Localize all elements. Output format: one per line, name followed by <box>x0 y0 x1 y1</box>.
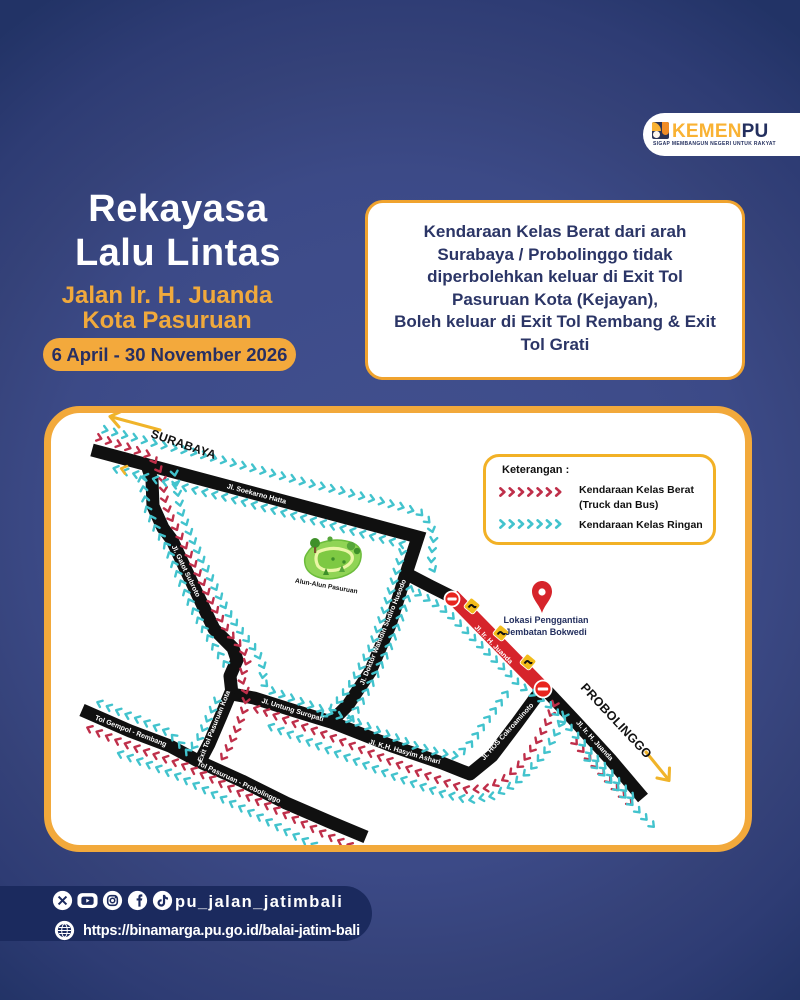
svg-text:Jl. Doktor Wahidin Sudiro Huso: Jl. Doktor Wahidin Sudiro Husodo <box>359 579 408 687</box>
svg-text:Jembatan Bokwedi: Jembatan Bokwedi <box>505 627 587 637</box>
svg-text:Jl. HOS Cokroaminoto: Jl. HOS Cokroaminoto <box>480 702 535 762</box>
svg-text:Tol Pasuruan - Probolinggo: Tol Pasuruan - Probolinggo <box>196 760 282 805</box>
svg-text:Alun-Alun Pasuruan: Alun-Alun Pasuruan <box>294 578 358 596</box>
svg-text:Jl. Ir. H. Juanda: Jl. Ir. H. Juanda <box>574 720 614 763</box>
svg-text:PROBOLINGGO: PROBOLINGGO <box>578 680 655 761</box>
svg-text:SURABAYA: SURABAYA <box>149 427 218 462</box>
svg-text:Lokasi Penggantian: Lokasi Penggantian <box>503 615 588 625</box>
